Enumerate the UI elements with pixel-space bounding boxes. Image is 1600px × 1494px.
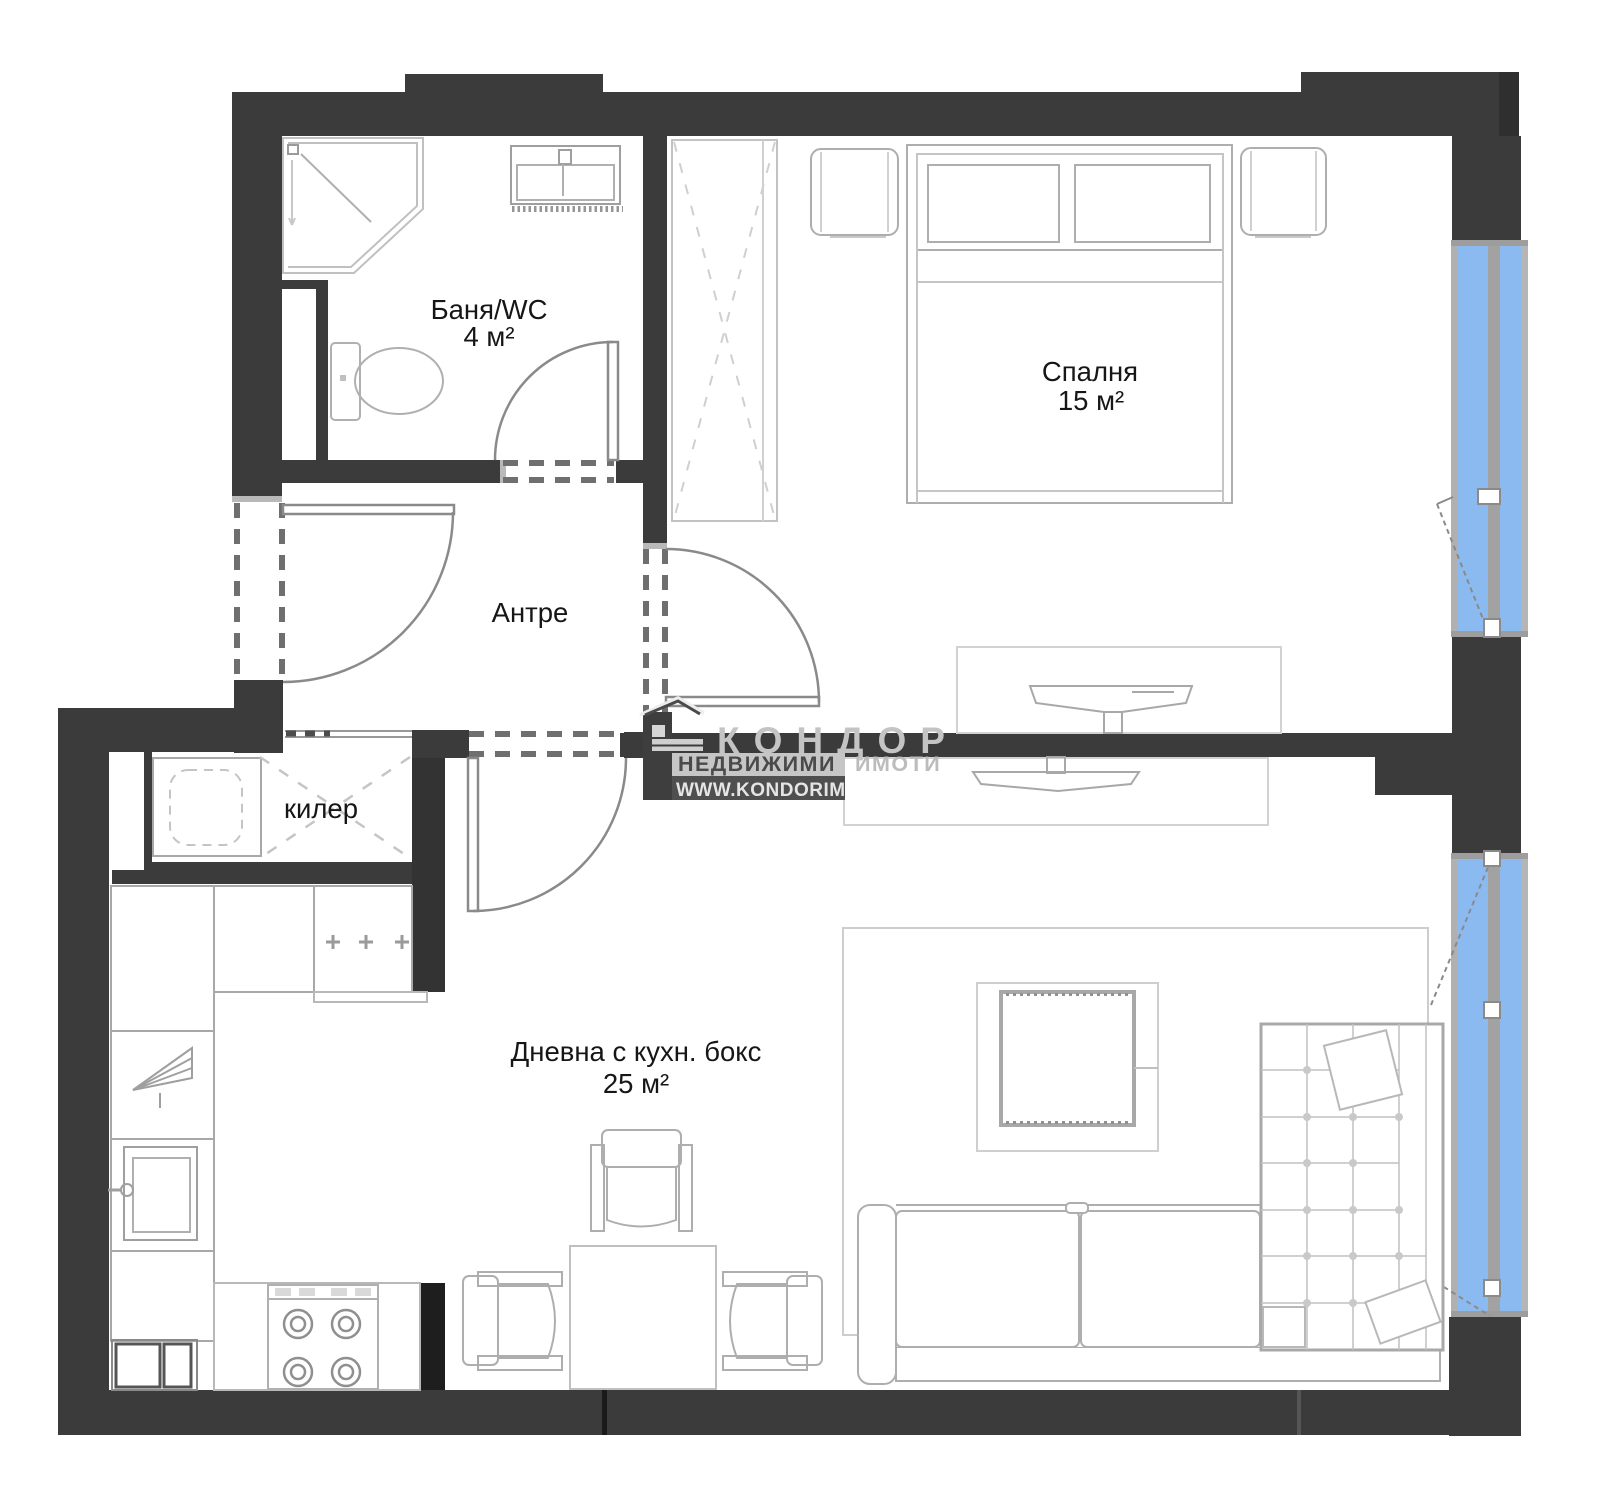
svg-text:НЕДВИЖИМИ: НЕДВИЖИМИ [678,752,836,776]
svg-text:Спалня: Спалня [1042,356,1138,387]
svg-text:килер: килер [284,793,358,824]
svg-text:WWW.KONDORIM: WWW.KONDORIM [676,780,846,801]
svg-text:Дневна с кухн. бокс: Дневна с кухн. бокс [511,1036,762,1067]
svg-text:Антре: Антре [492,597,569,628]
svg-text:15 м²: 15 м² [1058,385,1124,416]
svg-text:25 м²: 25 м² [603,1068,669,1099]
svg-text:4 м²: 4 м² [464,321,515,352]
svg-text:ИМОТИ: ИМОТИ [855,752,941,776]
